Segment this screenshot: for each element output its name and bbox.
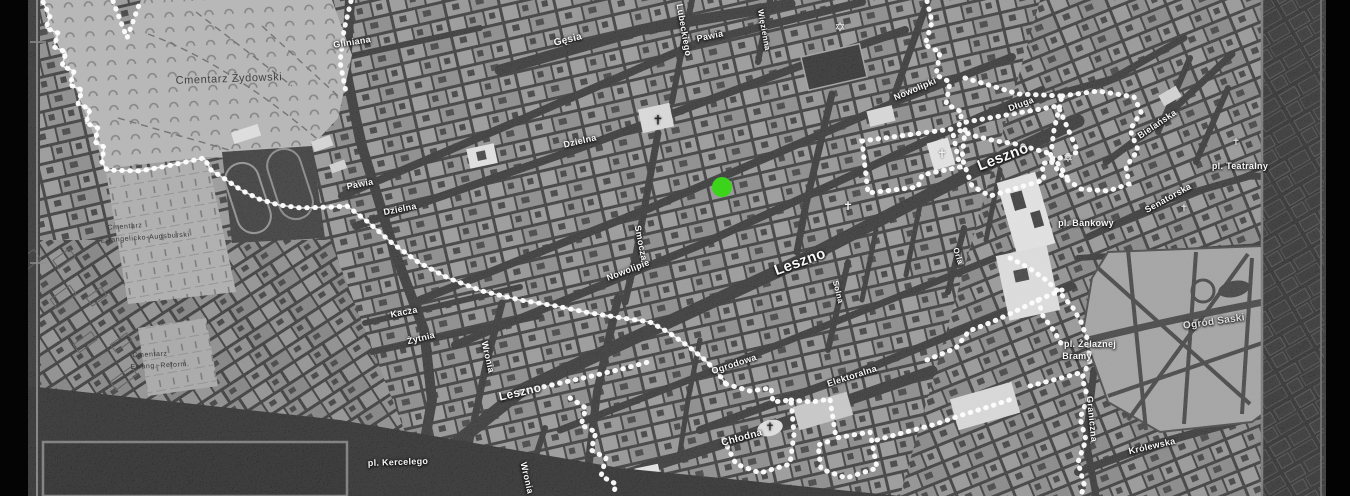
church-cross-icon: ✝ bbox=[653, 114, 664, 127]
church-cross-icon: ✝ bbox=[843, 200, 853, 212]
icons-layer: ✡✡✝✝✝✝✝✝ bbox=[0, 0, 1350, 496]
star-of-david-icon: ✡ bbox=[835, 21, 846, 34]
church-cross-icon: ✝ bbox=[765, 423, 774, 434]
star-of-david-icon: ✡ bbox=[1063, 152, 1073, 164]
church-cross-icon: ✝ bbox=[1232, 138, 1240, 148]
location-marker[interactable] bbox=[712, 177, 732, 197]
church-cross-icon: ✝ bbox=[1180, 204, 1188, 214]
map-viewport[interactable]: GlinianaGęsiaLubeckiegoPawiaWięziennaPaw… bbox=[0, 0, 1350, 496]
church-cross-icon: ✝ bbox=[937, 148, 947, 160]
